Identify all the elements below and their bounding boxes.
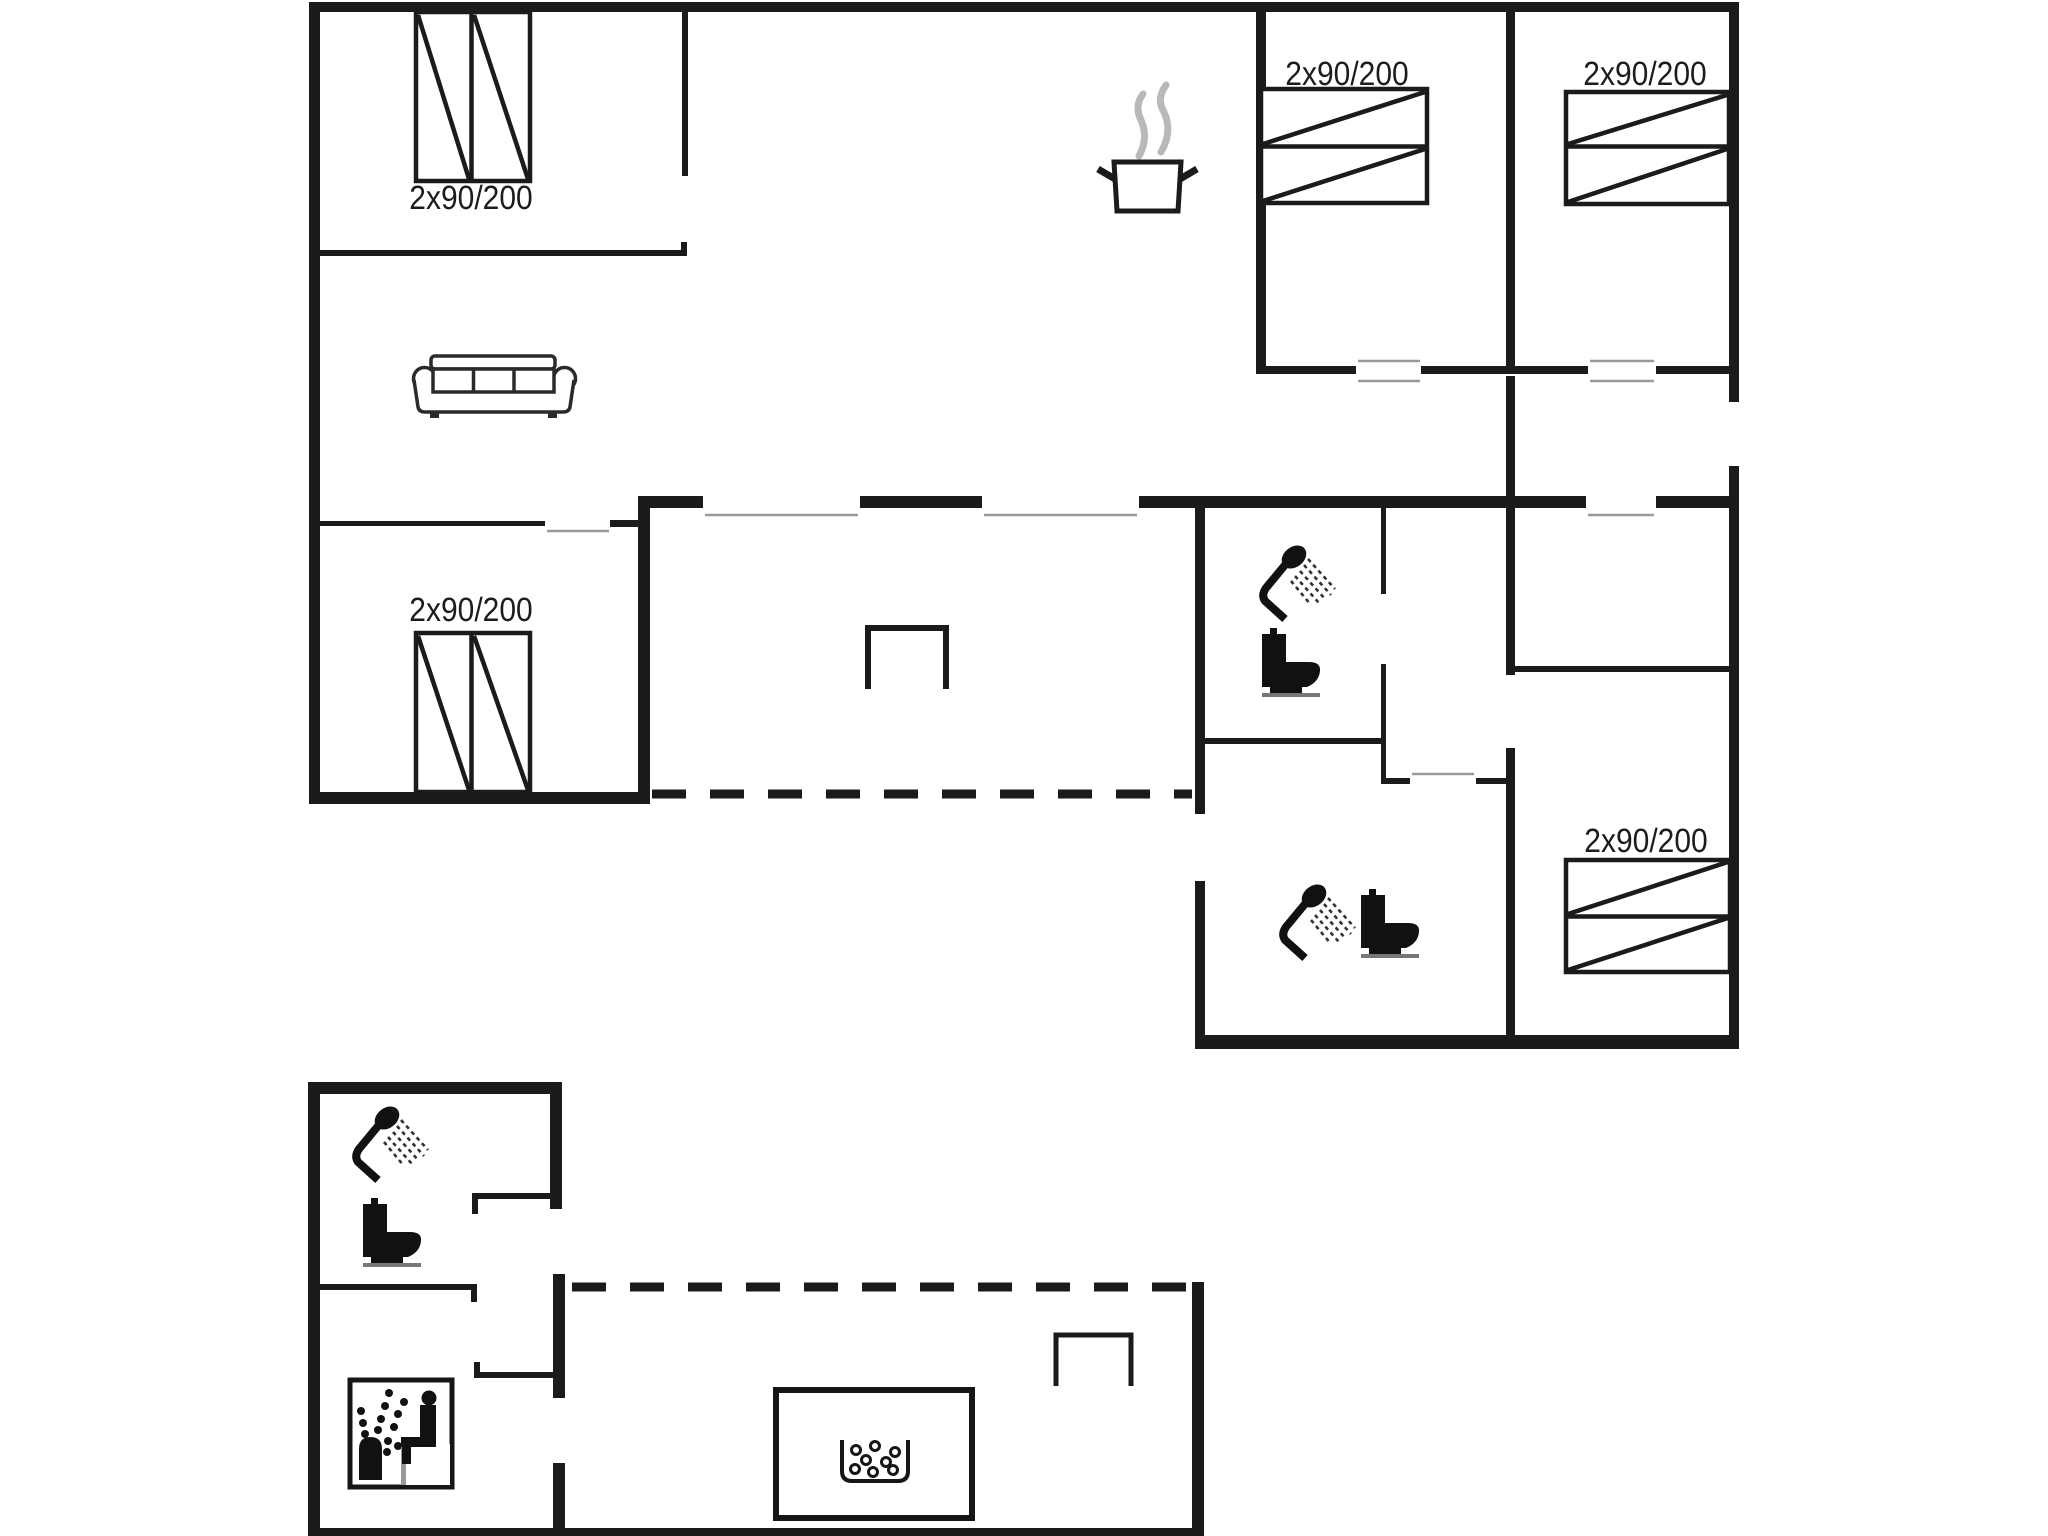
svg-text:2x90/200: 2x90/200: [1285, 56, 1408, 93]
svg-text:2x90/200: 2x90/200: [409, 592, 532, 629]
svg-text:2x90/200: 2x90/200: [409, 180, 532, 217]
svg-text:2x90/200: 2x90/200: [1583, 56, 1706, 93]
svg-text:2x90/200: 2x90/200: [1584, 823, 1707, 860]
